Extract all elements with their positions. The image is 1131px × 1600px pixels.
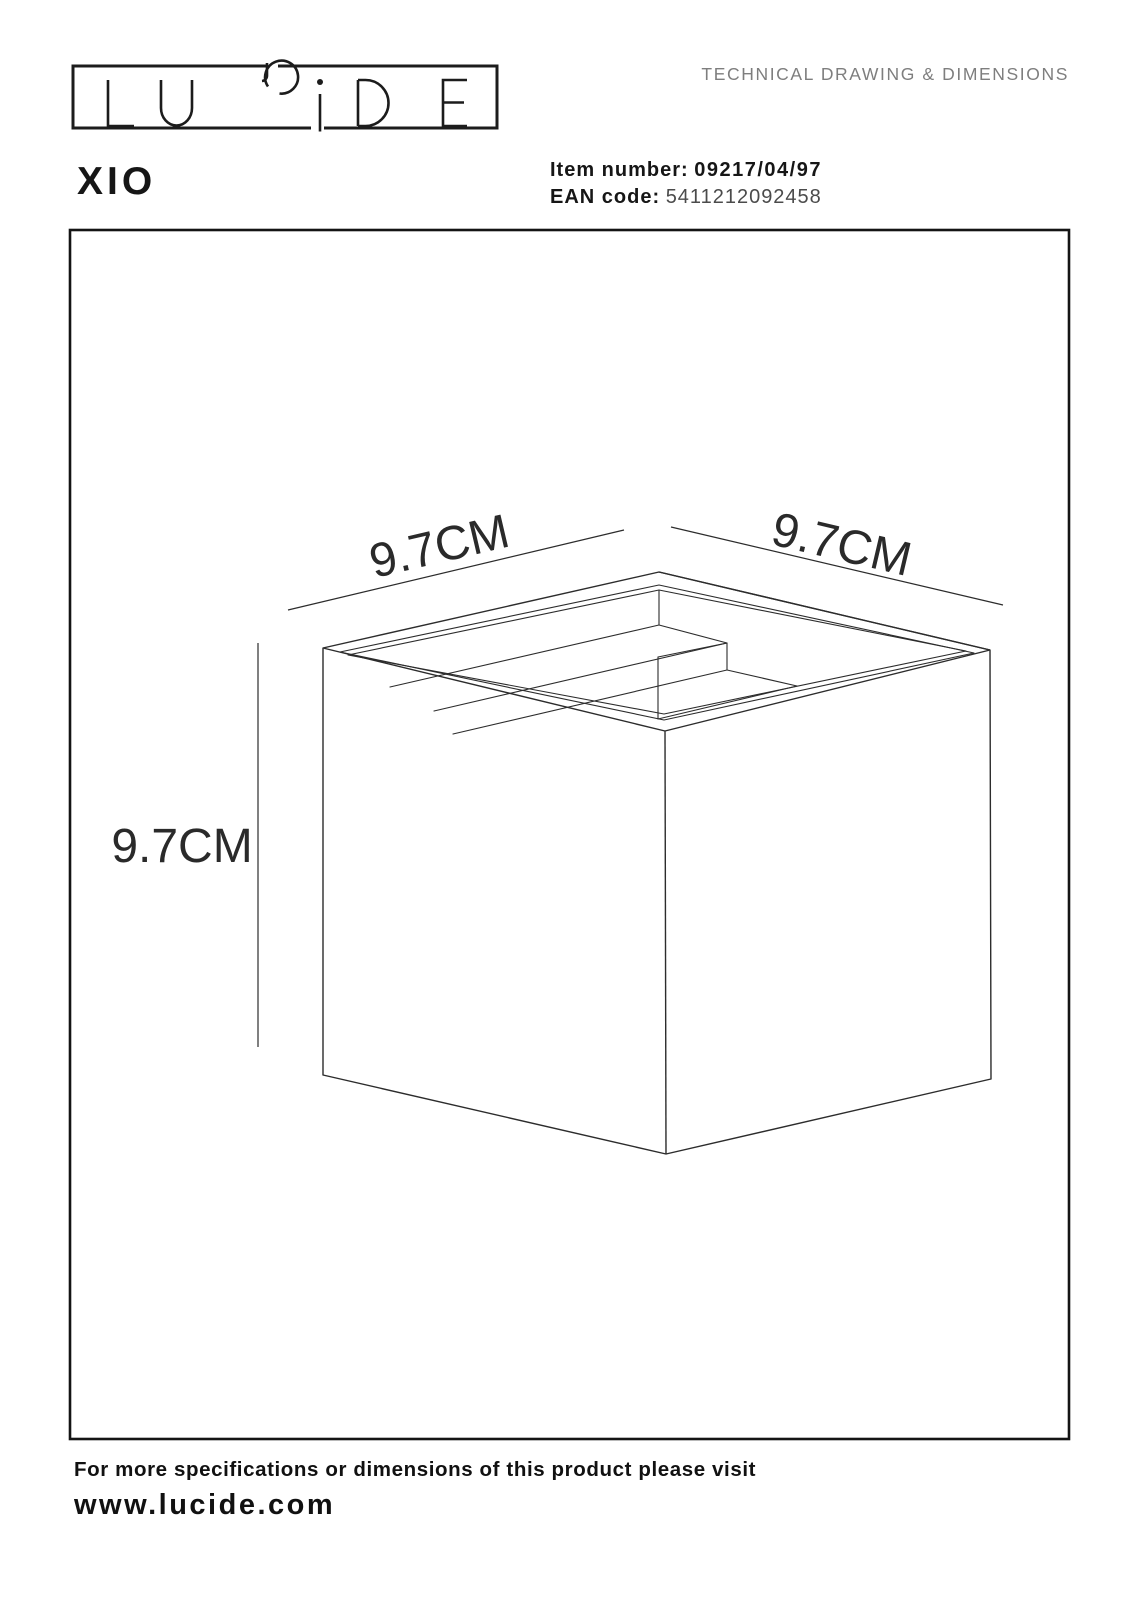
dimension-lines [258,527,1003,1047]
technical-drawing: 9.7CM 9.7CM 9.7CM [0,0,1131,1600]
footer-website-link[interactable]: www.lucide.com [74,1489,335,1522]
dimension-label-depth: 9.7CM [767,503,917,587]
cube-interior-baffle [390,590,797,734]
spec-sheet-page: LUCIDE TECHNICAL DRAWING & DIMENSIONS XI… [0,0,1131,1600]
dimension-label-height: 9.7CM [111,820,252,873]
dimension-label-width: 9.7CM [365,505,515,589]
cube-top-rim [340,585,974,720]
footer-note: For more specifications or dimensions of… [74,1458,756,1482]
